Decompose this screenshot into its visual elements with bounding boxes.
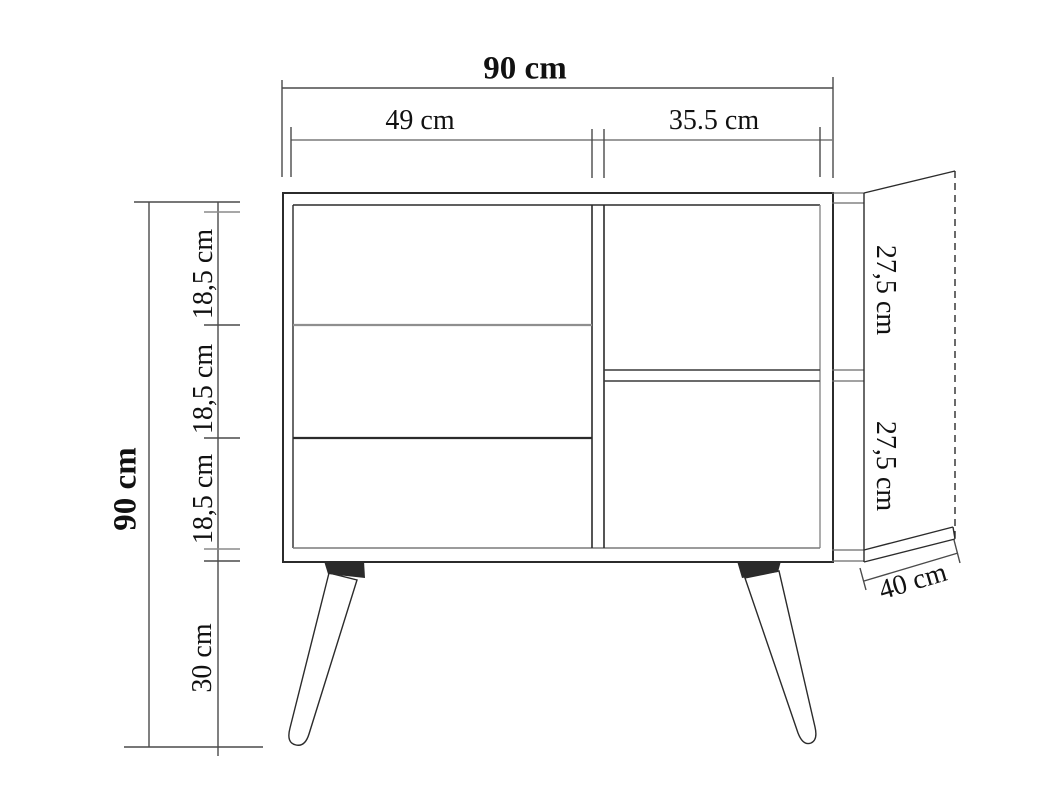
diagram-linework [0, 0, 1054, 795]
dim-label-drawer-height-2: 18,5 cm [188, 344, 220, 434]
dim-label-total-width: 90 cm [483, 51, 566, 88]
legs [289, 561, 816, 745]
dim-label-side-lower: 27,5 cm [869, 421, 901, 511]
dim-label-drawer-height-3: 18,5 cm [188, 454, 220, 544]
side-dimension-ticks [832, 193, 864, 561]
dim-label-left-section-width: 49 cm [385, 105, 454, 137]
furniture-dimension-diagram: 90 cm 49 cm 35.5 cm 90 cm 18,5 cm 18,5 c… [0, 0, 1054, 795]
dim-label-side-upper: 27,5 cm [869, 245, 901, 335]
dim-label-drawer-height-1: 18,5 cm [188, 229, 220, 319]
dim-label-leg-height: 30 cm [187, 623, 219, 692]
cabinet-front [283, 193, 833, 562]
dim-label-right-section-width: 35.5 cm [669, 105, 759, 137]
dim-label-total-height: 90 cm [108, 447, 145, 530]
right-leg [745, 571, 816, 744]
left-leg [289, 573, 357, 745]
